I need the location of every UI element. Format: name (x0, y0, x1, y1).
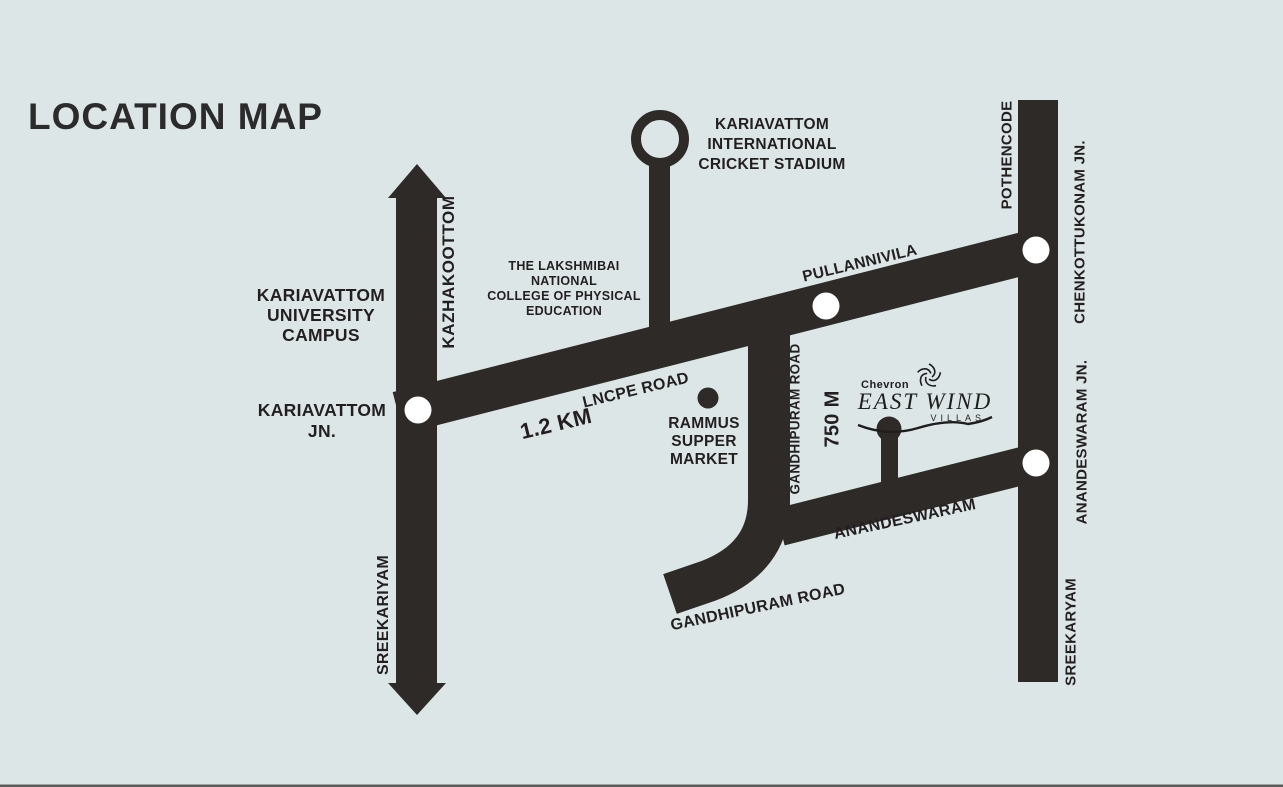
stadium-ring-icon (636, 115, 684, 163)
junction-dot-anandeswaram (1023, 450, 1050, 477)
road-label-pothencode: POTHENCODE (999, 101, 1016, 210)
road-kazhakoottom-sreekariyam (396, 197, 437, 684)
eastwind-villas-logo: Chevron EAST WIND VILLAS (855, 379, 995, 423)
road-label-gandhipuram-vertical: GANDHIPURAM ROAD 750 M (770, 343, 863, 494)
location-map: LOCATION MAP KAZHAKOOTTOM SREEKARIYAM KA… (0, 0, 1283, 787)
place-dot-rammus-market (698, 388, 719, 409)
road-label-sreekaryam: SREEKARYAM (1063, 578, 1080, 686)
place-label-cricket-stadium: KARIAVATTOM INTERNATIONAL CRICKET STADIU… (698, 115, 845, 175)
junction-label-kariavattom-jn: KARIAVATTOM JN. (258, 400, 386, 442)
road-label-sreekariyam: SREEKARIYAM (375, 555, 393, 675)
road-stadium-spur (649, 160, 670, 345)
junction-dot-chenkottukonam (1023, 237, 1050, 264)
junction-label-anandeswaram-jn: ANANDESWARAM JN. (1074, 360, 1091, 525)
junction-dot-pullannivila (813, 293, 840, 320)
place-label-rammus-market: RAMMUS SUPPER MARKET (668, 415, 740, 469)
place-label-lncpe-college: THE LAKSHMIBAI NATIONAL COLLEGE OF PHYSI… (487, 259, 641, 319)
page-title: LOCATION MAP (28, 96, 323, 138)
distance-label-750-m: 750 M (822, 343, 845, 494)
road-label-gandhipuram-text: GANDHIPURAM ROAD (788, 343, 803, 494)
arrow-up-icon (388, 164, 446, 198)
junction-dot-kariavattom (405, 397, 432, 424)
logo-subtitle-text: VILLAS (855, 413, 985, 423)
road-pothencode-sreekaryam (1018, 100, 1058, 682)
place-label-university-campus: KARIAVATTOM UNIVERSITY CAMPUS (257, 285, 385, 345)
road-label-kazhakoottom: KAZHAKOOTTOM (439, 195, 459, 348)
logo-name-text: EAST WIND (855, 391, 995, 413)
junction-label-chenkottukonam-jn: CHENKOTTUKONAM JN. (1072, 140, 1089, 324)
arrow-down-icon (388, 683, 446, 715)
